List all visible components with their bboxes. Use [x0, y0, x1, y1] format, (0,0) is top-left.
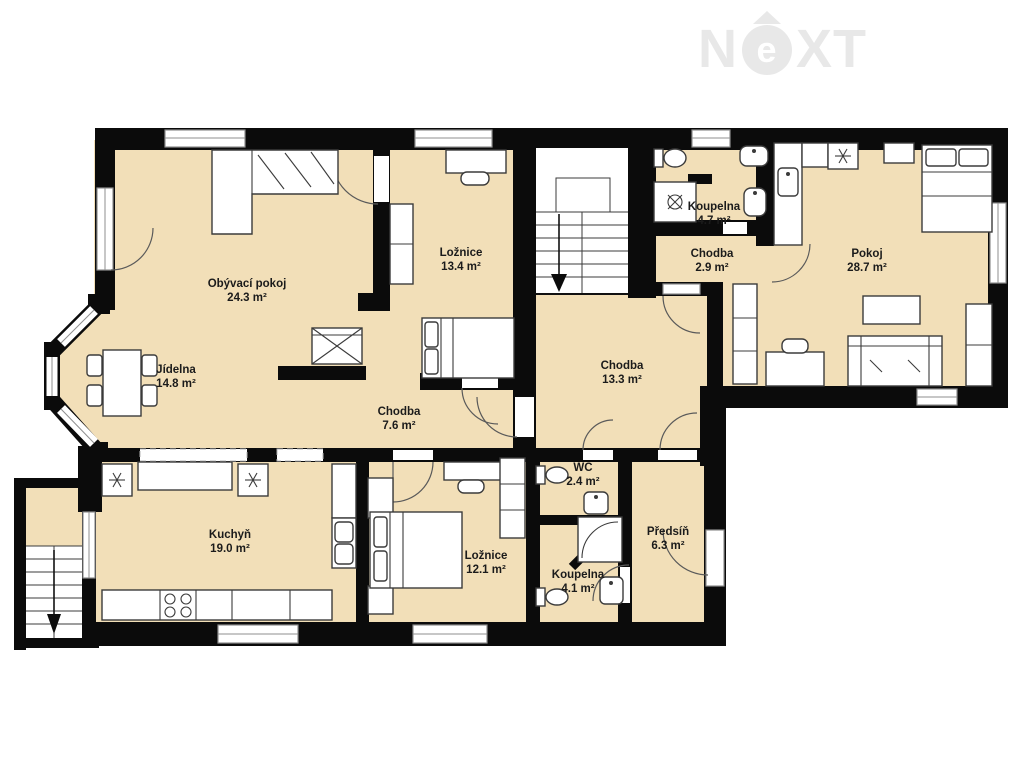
label-koupelna41-name: Koupelna [552, 569, 605, 581]
wall-kitchen-east [356, 462, 369, 622]
dining-chair [142, 355, 157, 376]
wall-shaft-west [513, 128, 536, 298]
staircase-side [26, 546, 82, 638]
faucet-dot [786, 172, 790, 176]
kitchen-counter [138, 462, 232, 490]
opening-kitchen-2 [277, 449, 323, 461]
label-koupelna41-area: 4.1 m² [561, 583, 594, 595]
gap-chodba76-chodba133 [515, 397, 534, 437]
label-chodba76-name: Chodba [378, 406, 421, 418]
desk-chair [458, 480, 484, 493]
label-koupelna47-area: 4.7 m² [697, 215, 730, 227]
toilet-tank [536, 588, 545, 606]
pillow [374, 517, 387, 547]
dining-table [103, 350, 141, 416]
label-loznice2-name: Ložnice [465, 550, 508, 562]
tall-cabinet [332, 464, 356, 518]
label-wc-name: WC [573, 462, 592, 474]
faucet-dot [594, 495, 598, 499]
toilet-bowl [664, 149, 686, 167]
label-jidelna-name: Jídelna [156, 364, 196, 376]
label-chodba133-name: Chodba [601, 360, 644, 372]
dining-chair [142, 385, 157, 406]
toilet-tank [536, 466, 545, 484]
dining-chair [87, 355, 102, 376]
wall-stair-north [14, 478, 86, 488]
wall-chodba-north-stub [278, 366, 366, 380]
tv-table [863, 296, 920, 324]
kitchen-counter [102, 590, 332, 620]
label-loznice1-area: 13.4 m² [441, 261, 481, 273]
gap-chodba29-chodba133 [663, 284, 700, 294]
label-chodba76-area: 7.6 m² [382, 420, 415, 432]
wall-south [95, 622, 726, 646]
label-pokoj-name: Pokoj [851, 248, 882, 260]
washbasin [600, 577, 623, 604]
label-chodba29-area: 2.9 m² [695, 262, 728, 274]
dining-chair [87, 385, 102, 406]
wall-stair-south [14, 638, 99, 648]
label-jidelna-area: 14.8 m² [156, 378, 196, 390]
wall-shaft-east [628, 128, 656, 298]
faucet-dot [753, 191, 757, 195]
desk [444, 462, 504, 480]
label-obyvaci-name: Obývací pokoj [208, 278, 287, 290]
label-predsin-area: 6.3 m² [651, 540, 684, 552]
wardrobe [500, 458, 525, 538]
sink-bowl [335, 544, 353, 564]
wardrobe [733, 284, 757, 384]
gap-loznice2-door [393, 450, 433, 460]
pillow [425, 349, 438, 374]
floor-stair-landing [26, 488, 82, 546]
label-kuchyn-area: 19.0 m² [210, 543, 250, 555]
label-wc-area: 2.4 m² [566, 476, 599, 488]
gap-predsin-door [658, 450, 697, 460]
wall-living-loznice [373, 128, 390, 302]
desk-chair [461, 172, 489, 185]
gap-entrance-door [706, 530, 724, 586]
shower-stall [578, 517, 622, 562]
label-loznice2-area: 12.1 m² [466, 564, 506, 576]
gap-wc-door [583, 450, 613, 460]
counter-unit [802, 143, 828, 167]
desk-chair [782, 339, 808, 353]
pillow [959, 149, 988, 166]
label-chodba29-name: Chodba [691, 248, 734, 260]
nightstand [884, 143, 914, 163]
toilet-tank [654, 149, 663, 167]
desk [446, 150, 506, 173]
floorplan-canvas: Obývací pokoj 24.3 m² Jídelna 14.8 m² Lo… [0, 0, 1024, 768]
floorplan-page: N e XT [0, 0, 1024, 768]
faucet-dot [752, 149, 756, 153]
wall-corner-block [358, 293, 390, 311]
opening-kitchen-1 [140, 449, 247, 461]
desk [766, 352, 824, 386]
wall-bay-corner3 [44, 394, 60, 410]
label-predsin-name: Předsíň [647, 526, 689, 538]
wall-stair-west [14, 478, 26, 650]
pillow [374, 551, 387, 581]
wardrobe [368, 586, 393, 614]
toilet-bowl [546, 467, 568, 483]
faucet-dot [609, 581, 613, 585]
label-loznice1-name: Ložnice [440, 247, 483, 259]
label-koupelna47-name: Koupelna [688, 201, 741, 213]
gap-living-loznice [374, 156, 389, 202]
wall-pokoj-south [707, 386, 1008, 408]
sofa [848, 336, 942, 386]
label-chodba133-area: 13.3 m² [602, 374, 642, 386]
staircase-main [536, 148, 628, 294]
pillow [425, 322, 438, 347]
pillow [926, 149, 956, 166]
label-pokoj-area: 28.7 m² [847, 262, 887, 274]
wall-bay-corner2 [44, 342, 60, 358]
label-obyvaci-area: 24.3 m² [227, 292, 267, 304]
label-kuchyn-name: Kuchyň [209, 529, 251, 541]
sink-bowl [335, 522, 353, 542]
